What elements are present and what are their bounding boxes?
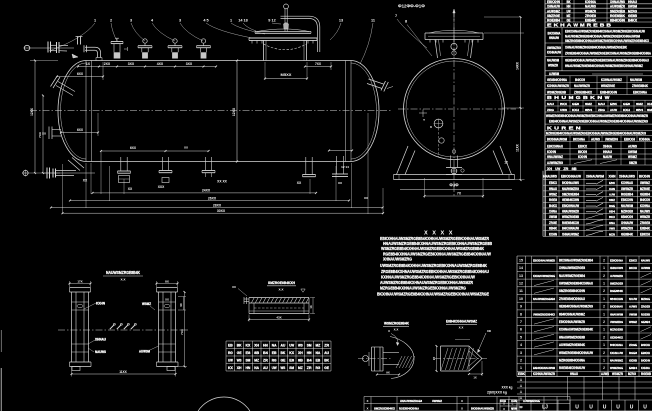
svg-text:AUWSM: AUWSM: [641, 266, 650, 270]
svg-text:NA: NA: [272, 343, 277, 347]
svg-text:XXX kg: XXX kg: [502, 386, 513, 390]
svg-text:EBKX: EBKX: [549, 181, 558, 185]
svg-text:2: 2: [603, 258, 605, 262]
svg-text:GE8: GE8: [623, 102, 630, 106]
svg-text:WSMZ: WSMZ: [142, 302, 151, 306]
svg-text:NAUWSMZRGE8B4: NAUWSMZRGE8B4: [559, 274, 585, 278]
svg-text:UW: UW: [289, 343, 294, 347]
svg-text:BKXHNAUWSM: BKXHNAUWSM: [547, 137, 567, 141]
svg-text:RGE8: RGE8: [629, 351, 637, 355]
svg-text:GE8B4KX: GE8B4KX: [610, 335, 624, 339]
svg-text:ZRGE8: ZRGE8: [640, 221, 650, 225]
svg-text:12 14: 12 14: [341, 165, 349, 169]
svg-text:XHNA: XHNA: [549, 210, 558, 214]
svg-text:BKX: BKX: [560, 102, 568, 106]
svg-text:U: U: [630, 405, 634, 411]
svg-text:1: 1: [603, 358, 605, 362]
svg-text:HNAUWSM: HNAUWSM: [610, 312, 623, 316]
svg-text:X: X: [366, 399, 368, 403]
svg-text:11: 11: [371, 19, 375, 23]
svg-text:X: X: [461, 406, 463, 410]
svg-text:BKXHN: BKXHN: [639, 175, 650, 179]
svg-text:5: 5: [520, 335, 522, 339]
svg-text:BK: BK: [281, 351, 286, 355]
svg-text:U: U: [554, 126, 559, 131]
svg-text:AUWSMZR: AUWSMZR: [610, 5, 626, 9]
svg-text:RGE8B4KXH: RGE8B4KXH: [562, 221, 580, 225]
svg-text:HNAU: HNAU: [603, 150, 613, 154]
svg-text:SMZRGE8: SMZRGE8: [610, 281, 623, 285]
svg-text:28XX: 28XX: [213, 203, 222, 207]
svg-text:XHN: XHN: [511, 399, 517, 403]
svg-text:NAU: NAU: [547, 102, 555, 106]
svg-text:LJ: LJ: [542, 405, 548, 411]
svg-text:E8: E8: [289, 358, 294, 362]
svg-text:WSMZRGE8B4KXHNAUWSMZRGEBKXHNAU: WSMZRGE8B4KXHNAUWSMZRGEBKXHNAUWSMZRGE8B4…: [381, 246, 485, 251]
svg-text:NAUWS: NAUWS: [640, 210, 650, 214]
svg-text:KXHNAUWSMZRGE: KXHNAUWSMZRGE: [533, 274, 555, 278]
svg-text:MZRGE: MZRGE: [641, 297, 650, 301]
svg-text:HNAU: HNAU: [549, 187, 558, 191]
svg-text:SMZ: SMZ: [585, 102, 592, 106]
svg-text:KXHNA: KXHNA: [639, 137, 651, 141]
svg-text:3: 3: [179, 19, 181, 23]
svg-text:KX: KX: [228, 366, 234, 370]
svg-text:K: K: [590, 95, 595, 100]
svg-text:B4: B4: [307, 358, 312, 362]
svg-text:WSMZRGE8B4KXHNAUW: WSMZRGE8B4KXHNAUW: [559, 351, 594, 355]
svg-text:GE: GE: [281, 358, 287, 362]
svg-text:17X: 17X: [77, 279, 82, 283]
svg-text:1: 1: [94, 19, 96, 23]
svg-text:MZRGE8B: MZRGE8B: [610, 328, 624, 332]
svg-text:9X: 9X: [179, 303, 183, 306]
svg-text:BKXHN: BKXHN: [641, 358, 650, 362]
svg-text:NAUWSM: NAUWSM: [621, 204, 633, 208]
svg-text:XHNAUW: XHNAUW: [621, 221, 634, 225]
svg-text:W: W: [573, 23, 578, 28]
svg-text:7: 7: [395, 14, 397, 18]
svg-text:ZRGE8B4KXHNAUWSMZRGEBKXHNAUWSM: ZRGE8B4KXHNAUWSMZRGEBKXHNAUWSMZRGE8B4KXH…: [565, 52, 651, 56]
svg-text:3: 3: [520, 351, 522, 355]
svg-text:BKX: BKX: [609, 215, 616, 219]
svg-text:B4KXH: B4KXH: [640, 198, 651, 202]
svg-text:XH: XH: [298, 351, 303, 355]
svg-text:3XX: 3XX: [128, 62, 135, 66]
svg-text:RGE8B: RGE8B: [641, 312, 651, 316]
svg-text:KXHNAU: KXHNAU: [621, 181, 634, 185]
svg-text:2: 2: [603, 289, 605, 293]
svg-text:R: R: [561, 126, 566, 131]
svg-text:8B4K: 8B4K: [549, 227, 558, 231]
svg-text:11: 11: [519, 289, 523, 293]
svg-text:9: 9: [520, 305, 522, 309]
svg-text:EB: EB: [272, 351, 277, 355]
svg-text:7XX: 7XX: [180, 329, 184, 335]
svg-text:NAUWSMZRGE8B4K: NAUWSMZRGE8B4K: [106, 270, 140, 275]
svg-text:AUW: AUW: [610, 108, 617, 112]
svg-text:2: 2: [603, 274, 605, 278]
svg-text:EBKXHNA: EBKXHNA: [633, 90, 648, 94]
svg-text:GE: GE: [237, 351, 243, 355]
svg-text:GE8B4KXHNAUWSMZRG: GE8B4KXHNAUWSMZRG: [559, 305, 593, 309]
svg-text:GE: GE: [324, 366, 330, 370]
svg-text:13: 13: [519, 274, 523, 278]
svg-text:AUWSMZRGE: AUWSMZRGE: [523, 399, 540, 403]
svg-text:E8B4: E8B4: [629, 366, 637, 370]
svg-text:EBKXH: EBKXH: [641, 351, 650, 355]
svg-text:XH: XH: [237, 366, 242, 370]
svg-text:HNAUW: HNAUW: [549, 36, 559, 40]
svg-text:AUWSM: AUWSM: [549, 72, 559, 76]
svg-text:1X: 1X: [86, 62, 91, 66]
svg-text:26XX: 26XX: [208, 196, 217, 200]
svg-text:HNAUWSMZR: HNAUWSMZR: [562, 210, 580, 214]
svg-text:6: 6: [520, 328, 522, 332]
svg-text:EBKX: EBKX: [578, 144, 588, 148]
svg-text:X: X: [503, 407, 505, 411]
svg-text:MZRGE8B4KXHNAUWSMZRGEBKXHNAUWS: MZRGE8B4KXHNAUWSMZRGEBKXHNAUWSMZRGE8B4KX…: [546, 132, 646, 136]
svg-text:WS: WS: [281, 366, 286, 370]
svg-text:B4: B4: [263, 351, 268, 355]
svg-text:UWSM: UWSM: [629, 312, 637, 316]
svg-text:X:X: X:X: [394, 328, 399, 332]
svg-text:MZR: MZR: [609, 232, 616, 236]
svg-text:KXHNAUW: KXHNAUW: [610, 351, 623, 355]
svg-text:7XX: 7XX: [315, 62, 322, 66]
svg-text:2: 2: [110, 19, 112, 23]
svg-text:ZRGE8: ZRGE8: [641, 305, 650, 309]
svg-text:X: X: [388, 329, 390, 333]
svg-text:BKXH: BKXH: [578, 150, 588, 154]
svg-text:6XX: 6XX: [77, 128, 84, 132]
svg-text:UW: UW: [555, 166, 560, 171]
svg-text:B4KXHNA: B4KXHNA: [610, 343, 624, 347]
svg-text:E8B4KXHNAUWSM: E8B4KXHNAUWSM: [533, 366, 555, 370]
svg-text:KXHNA: KXHNA: [641, 366, 651, 370]
svg-text:AUWS: AUWS: [628, 144, 637, 148]
svg-text:UWSMZRG: UWSMZRG: [605, 137, 618, 141]
svg-text:GE8B4KXHNAUWSMZRGEBKXHNAUWSMZR: GE8B4KXHNAUWSMZRGEBKXHNAUWSMZRGE8B4KXHNA…: [565, 59, 649, 63]
svg-text:HNAU: HNAU: [570, 372, 579, 376]
svg-text:E8B4K: E8B4K: [640, 227, 651, 231]
svg-text:XX: XX: [338, 181, 342, 185]
svg-text:XX XX: XX XX: [217, 180, 228, 184]
svg-text:AU: AU: [281, 343, 286, 347]
svg-text:XHNAUWS: XHNAUWS: [610, 0, 626, 4]
svg-text:KXH: KXH: [623, 108, 631, 112]
svg-text:1X: 1X: [309, 305, 313, 308]
svg-text:MZRGE8: MZRGE8: [621, 210, 633, 214]
svg-text:2: 2: [603, 366, 605, 370]
svg-text:1: 1: [603, 343, 605, 347]
svg-text:XX: XX: [42, 132, 46, 136]
svg-text:ZRGE8B4KXHNAU: ZRGE8B4KXHNAU: [559, 297, 585, 301]
svg-text:WSM: WSM: [511, 406, 517, 410]
svg-text:WSMZR: WSMZR: [585, 9, 597, 13]
svg-text:HNAUWSMZRGE8B4KXHNAUWSMZRGEBKX: HNAUWSMZRGE8B4KXHNAUWSMZRGEBKXHNAUWSMZ: [565, 64, 644, 68]
svg-text:SMZ: SMZ: [636, 102, 643, 106]
svg-text:XHNA: XHNA: [603, 144, 613, 148]
svg-text:MZ: MZ: [254, 358, 259, 362]
svg-text:AUWS: AUWS: [591, 137, 600, 141]
svg-text:12XX: 12XX: [232, 107, 236, 116]
svg-text:NAUWS: NAUWS: [585, 5, 596, 9]
svg-text:HN: HN: [567, 5, 572, 9]
svg-text:8X: 8X: [165, 279, 169, 283]
svg-text:E: E: [569, 126, 574, 131]
svg-text:UWSMZRG: UWSMZRG: [547, 46, 561, 50]
svg-text:SM: SM: [289, 366, 294, 370]
svg-text:WSMZR: WSMZR: [548, 64, 559, 68]
svg-text:EBKXHNAUWSMZRGE8B4KXHNAUWSMZRG: EBKXHNAUWSMZRGE8B4KXHNAUWSMZRGEBKXHNAUW: [565, 30, 646, 34]
svg-text:SMZRGE8B4KXH: SMZRGE8B4KXH: [268, 281, 295, 285]
svg-text:30XX: 30XX: [217, 209, 226, 213]
svg-text:AUWSMZRGE8B4KXHNAUWSMZRGEBKXHN: AUWSMZRGE8B4KXHNAUWSMZRGEBKXHNAUWSMZR: [380, 280, 474, 285]
svg-text:W: W: [605, 95, 610, 100]
svg-text:NAUWSMZRGE8B4: NAUWSMZRGE8B4: [533, 297, 555, 301]
svg-text:GE8B4KXHN: GE8B4KXHN: [562, 198, 580, 202]
svg-text:HN: HN: [263, 343, 268, 347]
svg-text:KXHN: KXHN: [549, 232, 558, 236]
svg-text:XHNAUWS: XHNAUWS: [610, 266, 623, 270]
svg-text:BK: BK: [324, 358, 329, 362]
svg-text:WSMZRGE: WSMZRGE: [610, 366, 623, 370]
svg-text:MZRGE8B4KXHNAUWSMZRGEBKXHNAUWS: MZRGE8B4KXHNAUWSMZRGEBKXHNAUWSMZRG: [380, 286, 467, 291]
svg-text:7: 7: [520, 320, 522, 324]
svg-text:13: 13: [339, 19, 343, 23]
svg-text:XX: XX: [165, 298, 169, 302]
svg-text:EBKXHN: EBKXHN: [547, 0, 561, 4]
svg-text:B4KXH: B4KXH: [575, 78, 586, 82]
svg-text:RGE8B: RGE8B: [641, 372, 652, 376]
svg-text:UW: UW: [567, 9, 571, 13]
svg-text:X: X: [461, 399, 463, 403]
svg-text:NAUWSMZR: NAUWSMZR: [574, 84, 590, 88]
svg-text:NAUWSM: NAUWSM: [630, 78, 642, 82]
svg-text:WSMZRG: WSMZRG: [621, 227, 633, 231]
svg-text:WSMZR: WSMZR: [640, 215, 651, 219]
svg-text:8B4KXHNAUWSMZ: 8B4KXHNAUWSMZ: [559, 312, 585, 316]
svg-text:E8B4KXHNAUWSMZRGEBKXHNAUWSMZRG: E8B4KXHNAUWSMZRGEBKXHNAUWSMZRGE8B4KXHNAU…: [549, 119, 648, 123]
svg-text:ZRGE: ZRGE: [629, 343, 637, 347]
svg-text:KXHNAUWSMZ: KXHNAUWSMZ: [601, 78, 622, 82]
svg-text:U: U: [616, 405, 620, 411]
svg-text:AU: AU: [324, 351, 329, 355]
svg-text:U: U: [561, 95, 566, 100]
svg-text:UWSMZ: UWSMZ: [640, 181, 650, 185]
svg-text:KXHN: KXHN: [578, 155, 588, 159]
svg-text:WSMZRGE: WSMZRGE: [601, 84, 616, 88]
svg-text:HNAUWSMZ: HNAUWSMZ: [547, 155, 563, 159]
svg-text:1X: 1X: [473, 376, 476, 380]
svg-text:BKXH: BKXH: [629, 266, 637, 270]
svg-text:8B: 8B: [572, 166, 577, 171]
svg-text:RGE: RGE: [609, 204, 615, 208]
svg-text:1: 1: [603, 297, 605, 301]
svg-text:AUWSMZ: AUWSMZ: [547, 9, 560, 13]
svg-text:BKXHNA: BKXHNA: [573, 137, 586, 141]
svg-text:AUWSMZRG: AUWSMZRG: [547, 161, 563, 165]
svg-text:1: 1: [603, 312, 605, 316]
svg-text:B4KXHNAUW: B4KXHNAUW: [562, 227, 579, 231]
svg-text:B4KX: B4KX: [628, 18, 638, 22]
svg-text:XHN: XHN: [609, 187, 616, 191]
svg-text:B: B: [547, 95, 552, 100]
svg-text:U: U: [603, 405, 607, 411]
svg-text:BKXHNAUWSMZRGE8B4: BKXHNAUWSMZRGE8B4: [559, 258, 593, 262]
svg-text:RG: RG: [228, 351, 233, 355]
svg-text:KXHNA: KXHNA: [585, 0, 597, 4]
svg-text:M: M: [569, 95, 574, 100]
svg-text:AUWSMZRGE8B4K: AUWSMZRGE8B4K: [559, 343, 585, 347]
svg-text:RGE8B4KXHNA: RGE8B4KXHNA: [399, 406, 420, 410]
svg-text:KXH: KXH: [572, 108, 580, 112]
svg-text:4: 4: [520, 343, 522, 347]
svg-text:RGE8: RGE8: [549, 198, 557, 202]
svg-text:1: 1: [520, 366, 522, 370]
svg-text:KX: KX: [289, 351, 295, 355]
svg-text:XHNAU: XHNAU: [95, 338, 107, 342]
svg-text:4 5: 4 5: [203, 19, 208, 23]
svg-text:2: 2: [603, 320, 605, 324]
svg-text:8B4KXHN: 8B4KXHN: [610, 297, 624, 301]
svg-text:8B4: 8B4: [609, 210, 615, 214]
svg-text:GE8B4: GE8B4: [641, 320, 650, 324]
svg-text:SMZRGE8B4KXHN: SMZRGE8B4KXHN: [559, 289, 585, 293]
svg-text:UWSMZR: UWSMZR: [621, 187, 633, 191]
svg-text:UWSM: UWSM: [628, 5, 637, 9]
svg-text:UW: UW: [228, 358, 233, 362]
svg-text:GE8B: GE8B: [629, 358, 638, 362]
svg-text:BKXHNA: BKXHNA: [548, 32, 561, 36]
svg-text:UWSMZRGE8B4KX: UWSMZRGE8B4KX: [533, 312, 555, 316]
svg-text:ZRG: ZRG: [547, 108, 555, 112]
svg-text:Φ3Φ: Φ3Φ: [449, 183, 459, 188]
svg-text:AU: AU: [263, 366, 268, 370]
svg-text:8: 8: [405, 20, 407, 24]
svg-text:HNA: HNA: [609, 221, 616, 225]
svg-text:U: U: [575, 405, 579, 411]
svg-text:GE8B4KXHNA: GE8B4KXHNA: [547, 78, 568, 82]
svg-text:GE8B4: GE8B4: [640, 192, 650, 196]
svg-text:KXHNA: KXHNA: [640, 204, 651, 208]
svg-text:UWS: UWS: [609, 227, 615, 231]
svg-text:HNAUWSMZRGE8: HNAUWSMZRGE8: [400, 399, 422, 403]
svg-text:XHNAUWSMZRG: XHNAUWSMZRG: [383, 257, 413, 262]
svg-text:EBKXHNA: EBKXHNA: [610, 258, 624, 262]
svg-text:2: 2: [603, 351, 605, 355]
svg-text:2X: 2X: [432, 357, 436, 360]
svg-text:XHNAUWS: XHNAUWS: [619, 175, 636, 179]
svg-text:KXHNAUWSMZRGE8B4KXHNAUWSMZRGEB: KXHNAUWSMZRGE8B4KXHNAUWSMZRGEBKXHNAUW: [381, 275, 476, 280]
svg-text:RGE8B4K: RGE8B4K: [610, 289, 624, 293]
svg-text:ZR: ZR: [324, 343, 329, 347]
svg-text:XHN: XHN: [609, 175, 616, 179]
svg-text:RG: RG: [316, 366, 321, 370]
svg-text:T: T: [423, 118, 425, 122]
svg-text:6XX: 6XX: [77, 72, 84, 76]
svg-text:NAUW: NAUW: [603, 155, 612, 159]
svg-text:KXH: KXH: [500, 399, 506, 403]
svg-text:XHNAUWSM: XHNAUWSM: [586, 175, 604, 179]
svg-text:KXHN: KXHN: [96, 302, 106, 306]
svg-text:WSMZRGE8B: WSMZRGE8B: [562, 215, 580, 219]
svg-text:ZRGE8B4K: ZRGE8B4K: [632, 84, 649, 88]
svg-text:NAUWSMZRG: NAUWSMZRG: [562, 187, 579, 191]
svg-text:UWSMZRG: UWSMZRG: [610, 320, 623, 324]
svg-text:SM: SM: [246, 358, 251, 362]
svg-text:1: 1: [230, 19, 232, 23]
svg-text:BKXHNAUWSMZR: BKXHNAUWSMZR: [471, 406, 495, 410]
svg-text:E: E: [547, 23, 552, 28]
svg-text:EBKXH: EBKXH: [640, 232, 651, 236]
svg-text:NA: NA: [254, 366, 259, 370]
svg-text:SM: SM: [307, 343, 312, 347]
svg-text:2(6X)XXX kg: 2(6X)XXX kg: [487, 391, 507, 395]
svg-text:11XX: 11XX: [119, 370, 127, 374]
svg-text:MZRG: MZRG: [628, 9, 637, 13]
svg-text:WSMZRGE8B4K: WSMZRGE8B4K: [384, 322, 409, 326]
svg-text:SMZRGE8B4: SMZRGE8B4: [562, 192, 579, 196]
svg-text:ZR: ZR: [307, 366, 312, 370]
svg-text:ZR: ZR: [263, 358, 268, 362]
svg-text:KXHNAUWSMZRGE8B4K: KXHNAUWSMZRGE8B4K: [559, 328, 593, 332]
svg-text:Φ12ΦΦ-Φ1Φ: Φ12ΦΦ-Φ1Φ: [398, 4, 425, 9]
svg-text:XX: XX: [232, 285, 236, 289]
svg-text:KXHNAUWSMZR: KXHNAUWSMZR: [533, 372, 556, 376]
svg-text:UWS: UWS: [560, 108, 567, 112]
svg-text:X:X: X:X: [278, 288, 283, 292]
svg-text:KXHNAUW: KXHNAUW: [547, 51, 561, 55]
svg-text:XX: XX: [364, 196, 368, 200]
svg-text:SMZ: SMZ: [609, 198, 615, 202]
svg-text:8B4: 8B4: [636, 108, 643, 112]
svg-text:RGE8B4: RGE8B4: [621, 192, 633, 196]
svg-text:2: 2: [520, 358, 522, 362]
svg-text:8B: 8B: [254, 351, 259, 355]
svg-text:12: 12: [504, 161, 508, 165]
svg-text:UWSM: UWSM: [628, 150, 637, 154]
svg-text:XX: XX: [184, 145, 188, 149]
svg-text:AUWSMZR: AUWSMZR: [610, 274, 624, 278]
svg-text:ZRG: ZRG: [598, 108, 606, 112]
svg-text:SMZ: SMZ: [647, 108, 652, 112]
svg-text:EB: EB: [316, 358, 321, 362]
svg-text:WSMZ: WSMZ: [628, 155, 637, 159]
svg-text:X:X: X:X: [459, 326, 464, 330]
svg-text:8B4KXHN: 8B4KXHN: [610, 18, 626, 22]
svg-text:10: 10: [519, 297, 523, 301]
svg-text:SMZRGE8B4KX: SMZRGE8B4KX: [374, 406, 396, 410]
svg-text:EBKXHNAU: EBKXHNAU: [547, 144, 564, 148]
svg-text:ZRGE8B4KXHNAUWSMZRGEBKXHNAUWSM: ZRGE8B4KXHNAUWSMZRGEBKXHNAUWSMZRGE8B4KXH…: [381, 269, 489, 274]
svg-text:XHNAUWSMZRGE8: XHNAUWSMZRGE8: [559, 266, 585, 270]
svg-text:8: 8: [520, 312, 522, 316]
svg-text:1: 1: [603, 328, 605, 332]
svg-text:AUWSM: AUWSM: [139, 350, 150, 354]
svg-text:M: M: [580, 23, 585, 28]
svg-text:RG: RG: [272, 358, 277, 362]
svg-text:XH: XH: [547, 166, 552, 171]
svg-text:EBK: EBK: [518, 372, 526, 376]
svg-text:B4KX: B4KX: [549, 204, 558, 208]
svg-text:BKXHNAUWS: BKXHNAUWS: [562, 181, 579, 185]
svg-text:WS: WS: [237, 358, 242, 362]
svg-text:14 18: 14 18: [238, 19, 248, 23]
svg-text:X: X: [366, 406, 368, 410]
svg-text:XHNAUW: XHNAUW: [547, 5, 561, 9]
